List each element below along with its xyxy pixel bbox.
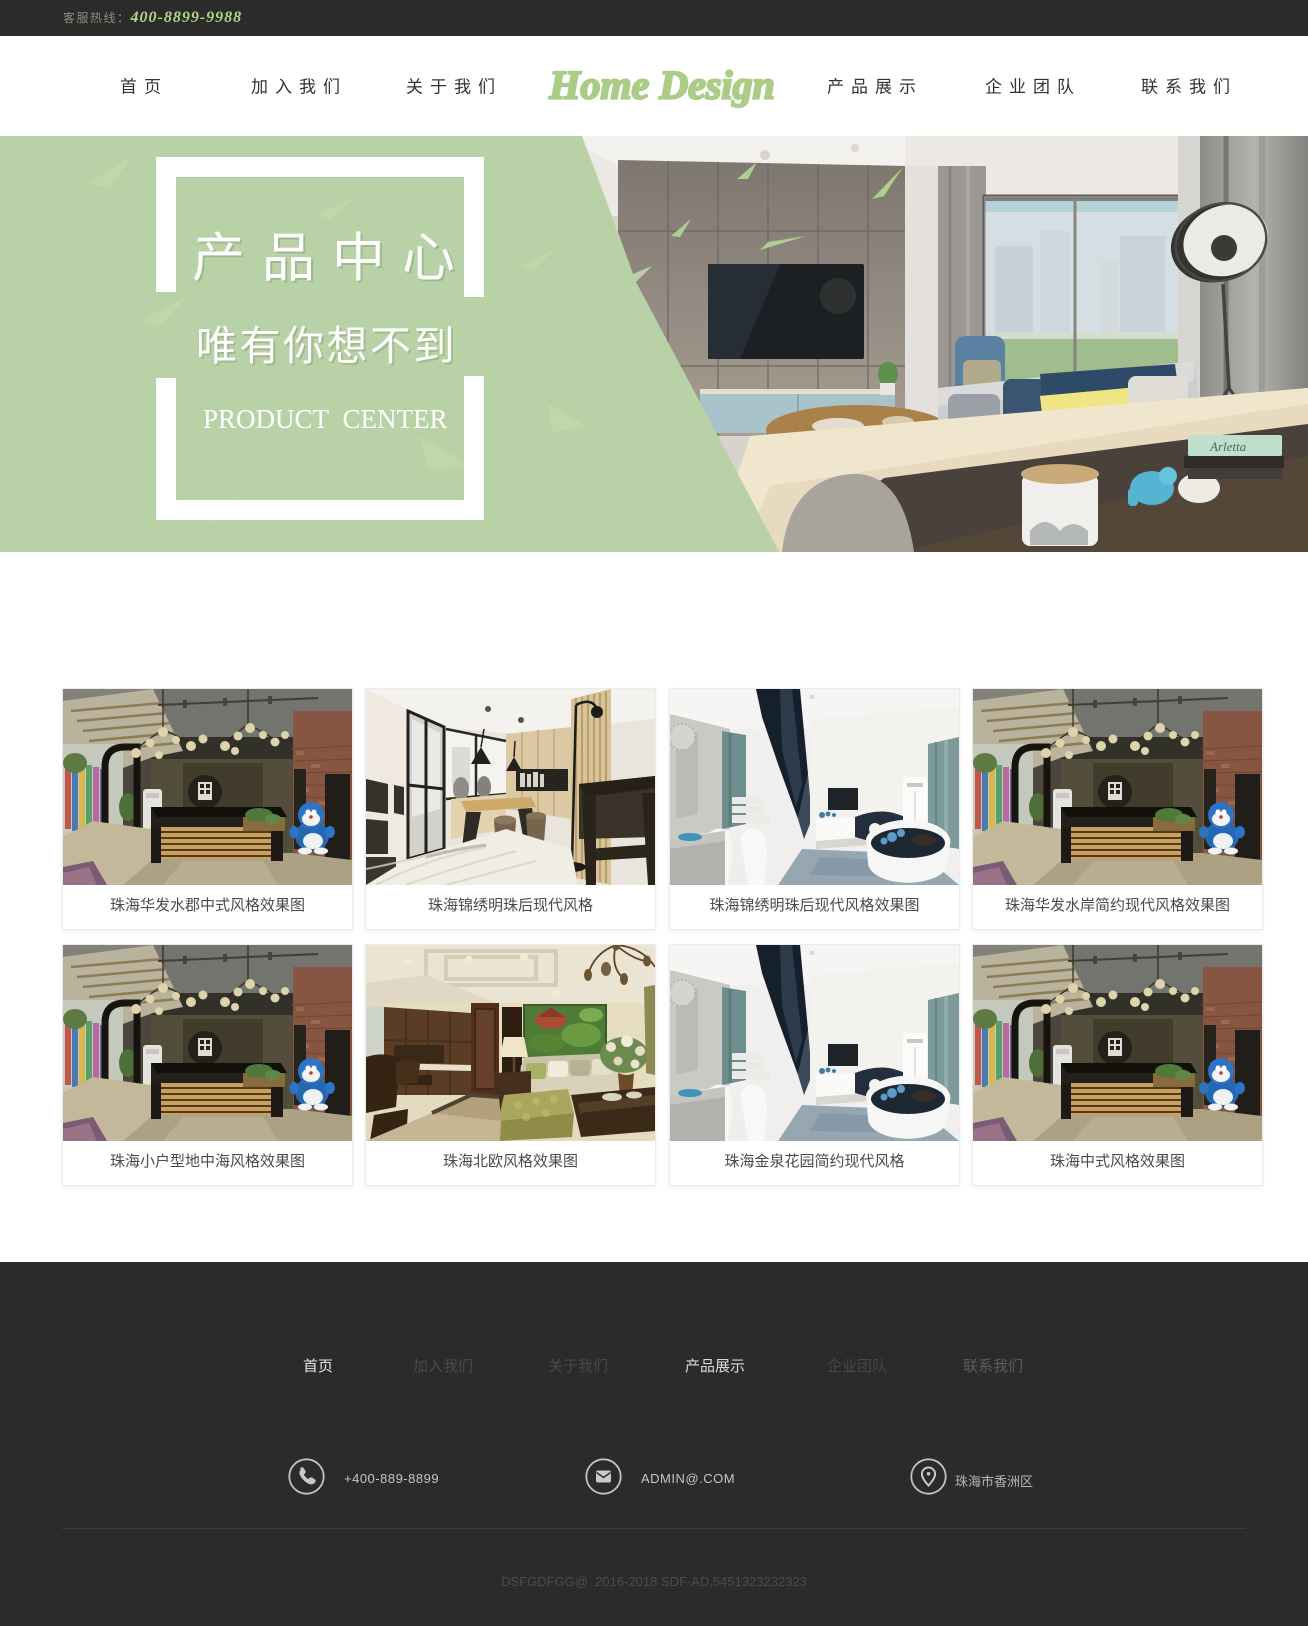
svg-text:产品中心: 产品中心 (192, 229, 472, 288)
svg-text:PRODUCT CENTER: PRODUCT CENTER (203, 404, 448, 434)
svg-text:Arletta: Arletta (1209, 439, 1247, 454)
svg-text:唯有你想不到: 唯有你想不到 (196, 323, 457, 369)
